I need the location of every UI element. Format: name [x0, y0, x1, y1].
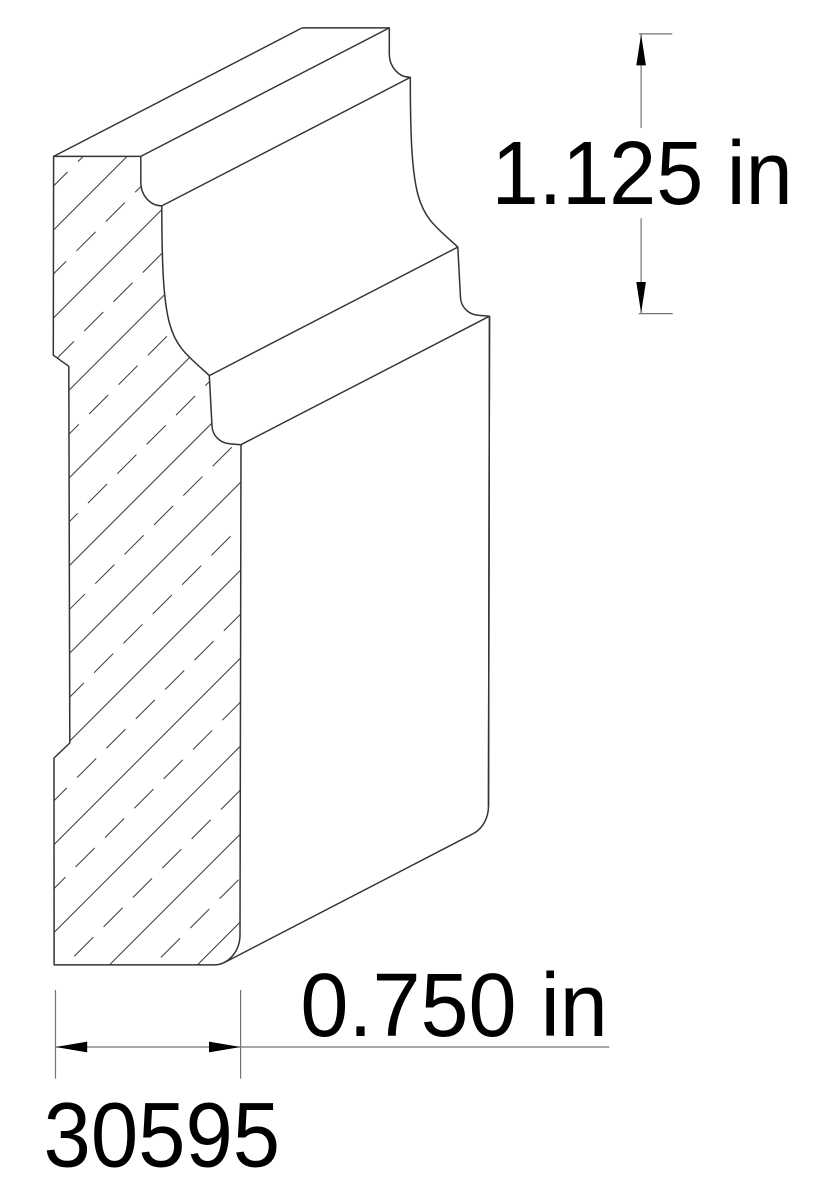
svg-text:30595: 30595 — [44, 1084, 281, 1187]
svg-text:1.125 in: 1.125 in — [492, 123, 793, 224]
svg-text:0.750 in: 0.750 in — [300, 955, 607, 1056]
